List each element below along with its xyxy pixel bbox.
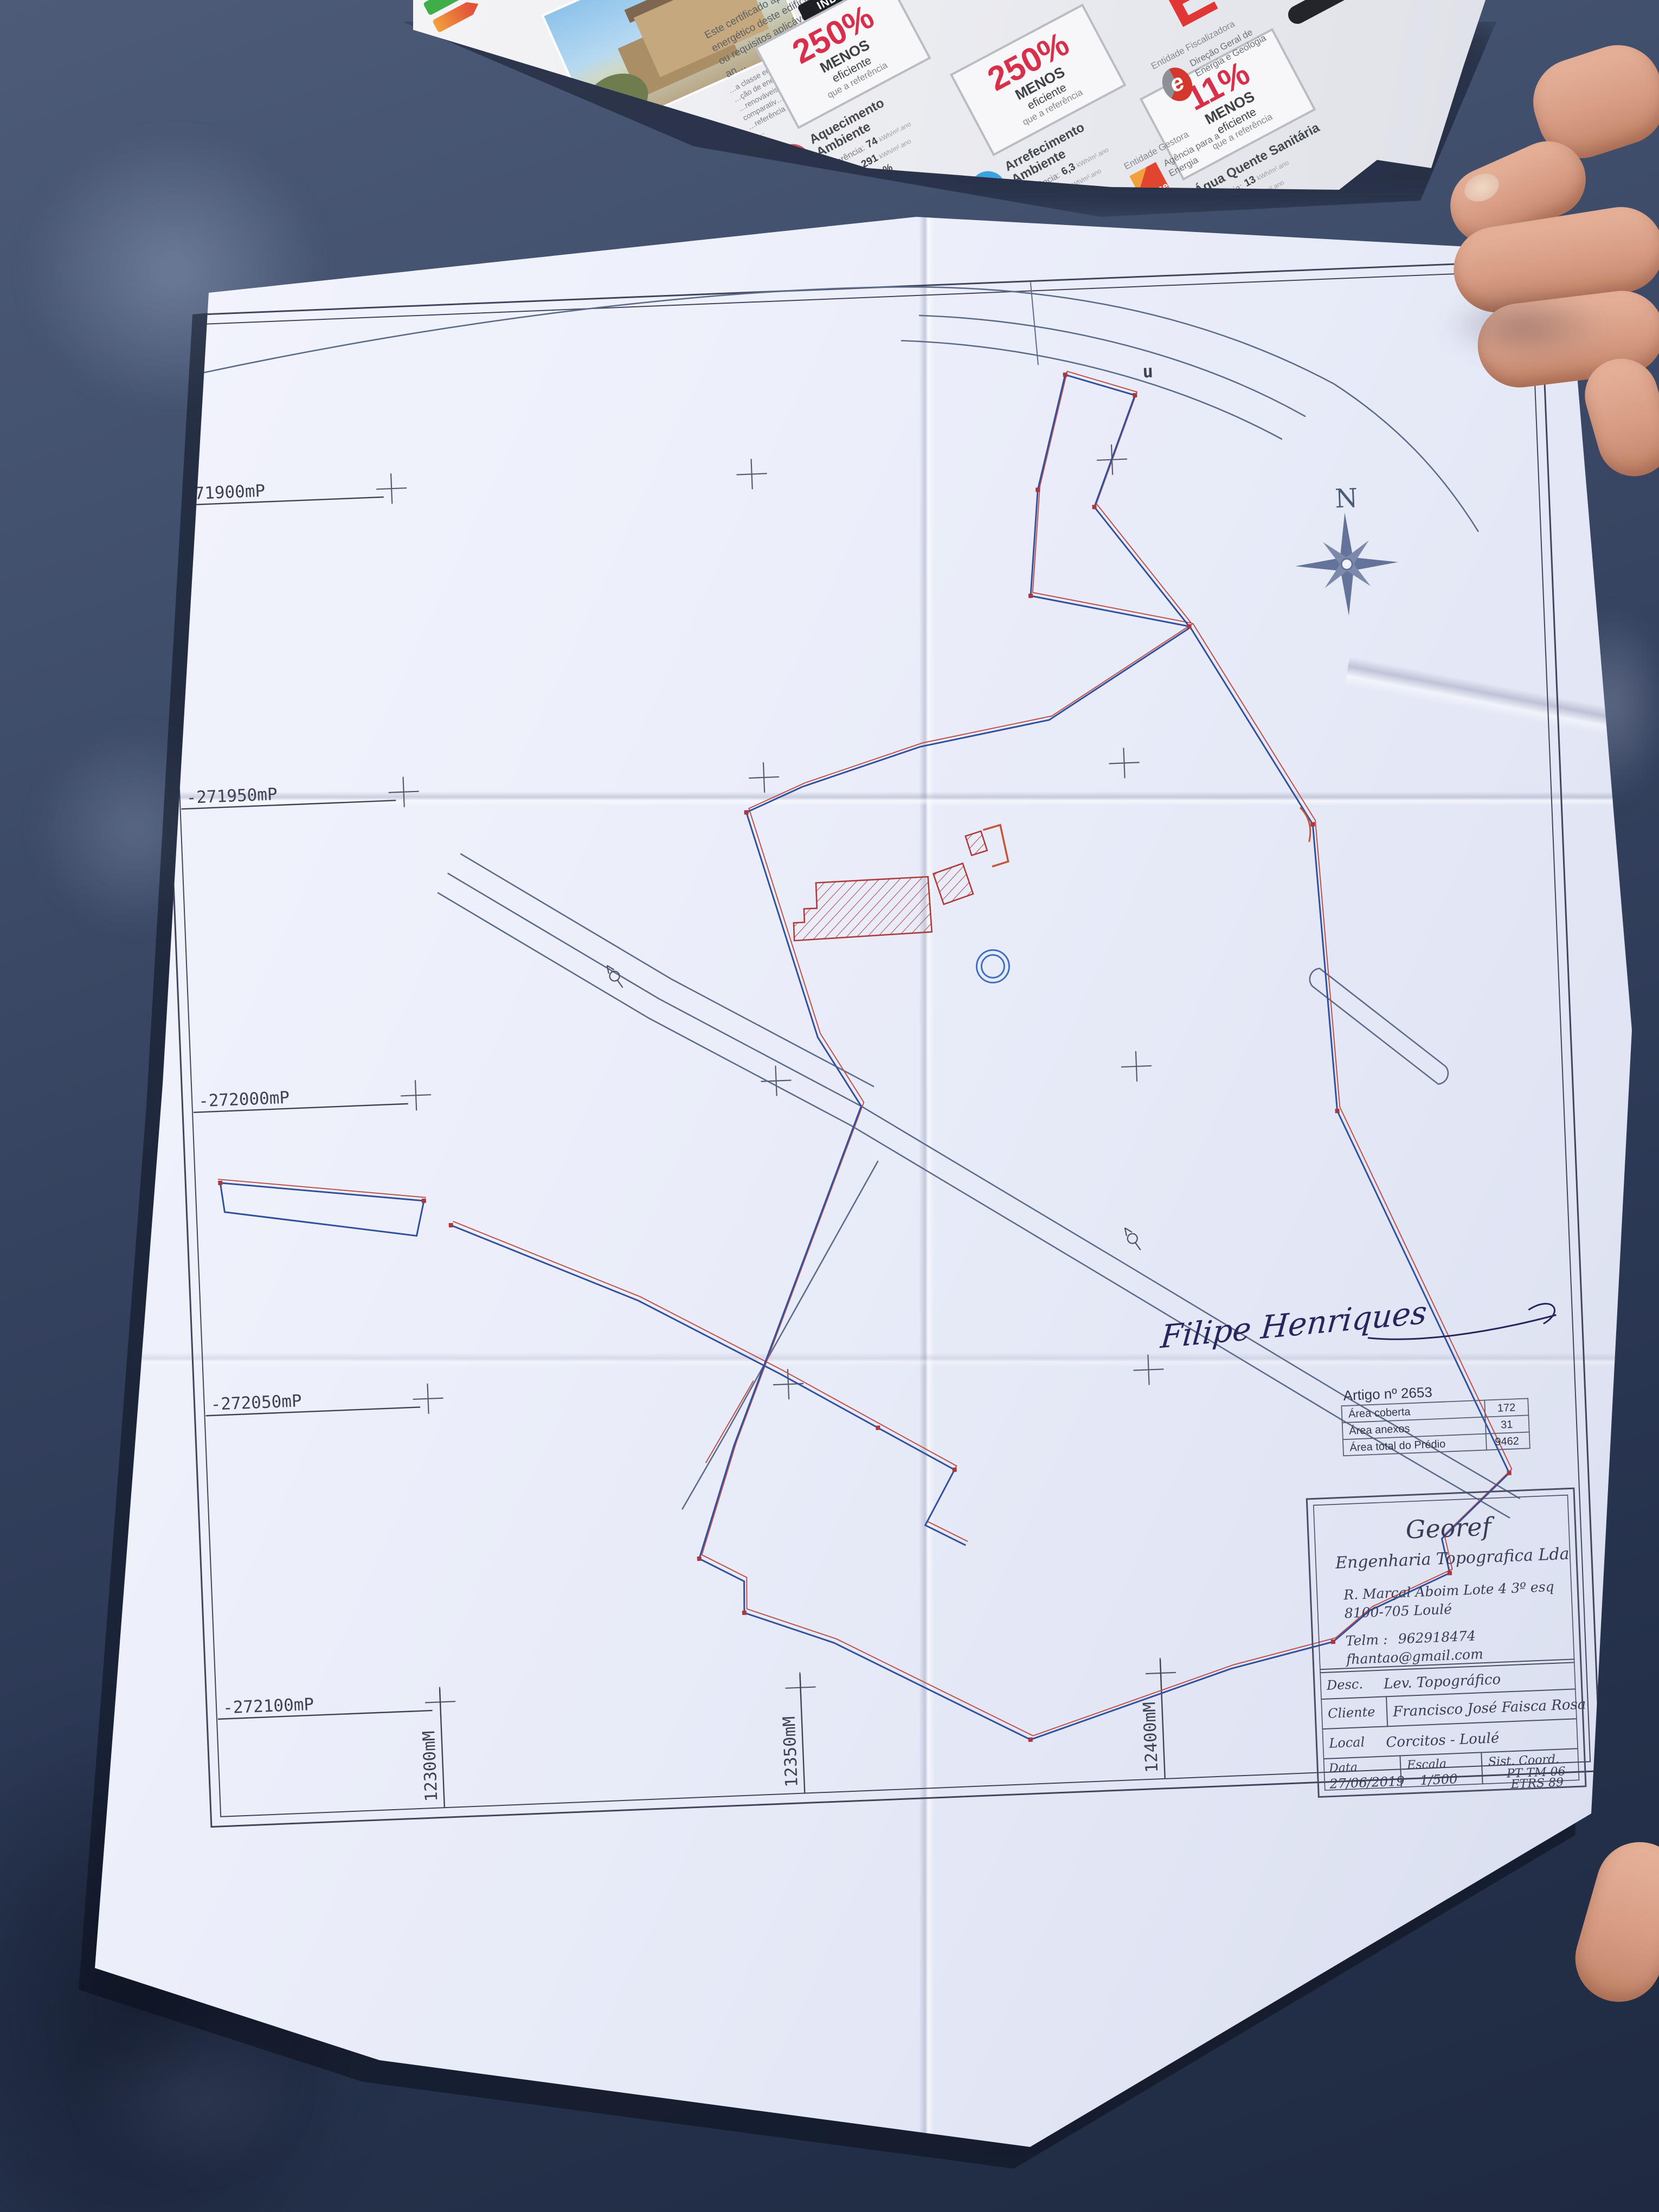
utility-pole-icon [1121, 1225, 1145, 1253]
phone-label: Telm : [1345, 1631, 1388, 1649]
easting-label: 12350mM [780, 1716, 802, 1787]
building-icon [1496, 0, 1532, 22]
artigo-row-value: 172 [1497, 1401, 1515, 1414]
client-label: Cliente [1328, 1704, 1375, 1721]
plan-drawing: -271900mP -271950mP -272000mP -272050mP … [142, 232, 1647, 2153]
signature-text: Filipe Henriques [1159, 1294, 1428, 1355]
artigo-title: Artigo nº 2653 [1343, 1384, 1432, 1404]
scale-label: Escala [1406, 1757, 1447, 1772]
artigo-table: Artigo nº 2653 Área coberta 172 Área ane… [1341, 1380, 1530, 1456]
hand-shadow [1442, 293, 1605, 358]
easting-label: 12400mM [1140, 1702, 1162, 1773]
small-annex-hatched [965, 831, 987, 856]
main-building-hatched [792, 877, 932, 941]
parcel-boundary-blue [189, 359, 1519, 1771]
grid-labels-left: -271900mP -271950mP -272000mP -272050mP … [174, 481, 314, 1718]
topographic-plan-paper: -271900mP -271950mP -272000mP -272050mP … [76, 206, 1659, 2169]
coord-value-2: ETRS 89 [1510, 1776, 1564, 1791]
scale-value: 1/500 [1420, 1771, 1458, 1788]
easting-label: 12300mM [419, 1731, 441, 1802]
ref-value: 74 [864, 135, 880, 150]
desc-value: Lev. Topográfico [1383, 1671, 1501, 1693]
northing-label: -272000mP [198, 1088, 290, 1111]
photo-scene: { "colors": { "table": "#35425f", "paper… [0, 0, 1659, 2212]
artigo-row-label: Área coberta [1348, 1405, 1411, 1420]
client-value: Francisco José Faisca Rosa [1392, 1696, 1586, 1720]
artigo-row-value: 9462 [1495, 1435, 1519, 1448]
grid-crosses [376, 444, 1176, 1718]
artigo-row-value: 31 [1501, 1419, 1513, 1431]
northing-label: -272050mP [210, 1391, 302, 1414]
north-label: N [1334, 483, 1358, 515]
energy-class-letter: E [1155, 0, 1222, 31]
desc-label: Desc. [1326, 1676, 1364, 1693]
energy-class-arrows [423, 0, 487, 38]
northing-label: -271950mP [186, 785, 278, 808]
annex-building-hatched [933, 863, 974, 905]
barcode-pill [1285, 0, 1356, 27]
title-block: Georef Engenharia Topografica Lda R. Mar… [1307, 1488, 1589, 1799]
company-address1: R. Marçal Aboim Lote 4 3º esq [1343, 1579, 1554, 1603]
boundary-vertex-dots [187, 356, 1521, 1773]
grid-labels-bottom: 12300mM 12350mM 12400mM [419, 1702, 1162, 1802]
grid-ticks [169, 468, 1165, 1817]
local-label: Local [1328, 1734, 1365, 1751]
signature: Filipe Henriques [1155, 1282, 1557, 1363]
date-value: 27/06/2019 [1329, 1773, 1405, 1792]
company-address2: 8100-705 Loulé [1344, 1601, 1452, 1621]
well-circle [976, 949, 1009, 983]
northing-label: -272100mP [222, 1695, 314, 1718]
boundary-mark: u [1142, 361, 1154, 382]
buildings [790, 831, 991, 941]
phone-value: 962918474 [1398, 1628, 1476, 1647]
local-value: Corcitos - Loulé [1386, 1730, 1500, 1751]
ref-value: 13 [1242, 174, 1258, 189]
utility-pole-icon [603, 963, 627, 991]
artigo-row-label: Área total do Prédio [1349, 1438, 1446, 1454]
red-wall-line [983, 825, 1008, 867]
date-label: Data [1328, 1761, 1358, 1776]
artigo-row-label: Área anexos [1349, 1422, 1410, 1437]
compass-rose: N [1292, 481, 1400, 618]
ref-value: 6,3 [1059, 161, 1077, 178]
company-name: Georef [1405, 1512, 1496, 1545]
